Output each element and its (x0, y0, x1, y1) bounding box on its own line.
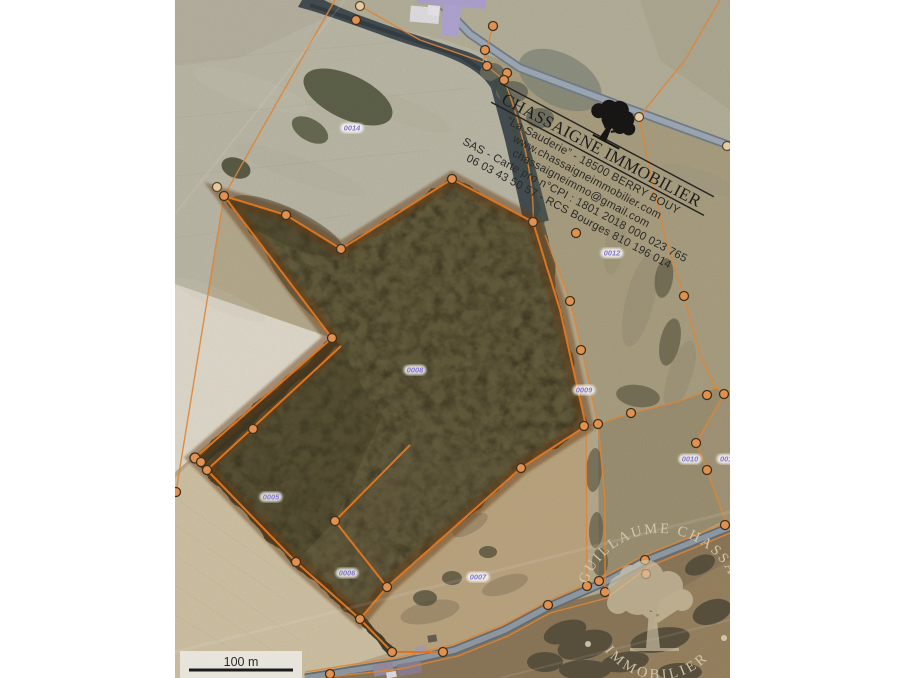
svg-text:0007: 0007 (470, 573, 487, 582)
svg-text:0006: 0006 (339, 569, 356, 578)
svg-text:0010: 0010 (682, 455, 699, 464)
svg-text:0008: 0008 (407, 366, 424, 375)
svg-text:0014: 0014 (344, 124, 360, 133)
svg-text:100 m: 100 m (224, 655, 259, 669)
svg-text:0012: 0012 (604, 249, 621, 258)
svg-text:0009: 0009 (576, 386, 593, 395)
svg-text:0005: 0005 (263, 493, 280, 502)
